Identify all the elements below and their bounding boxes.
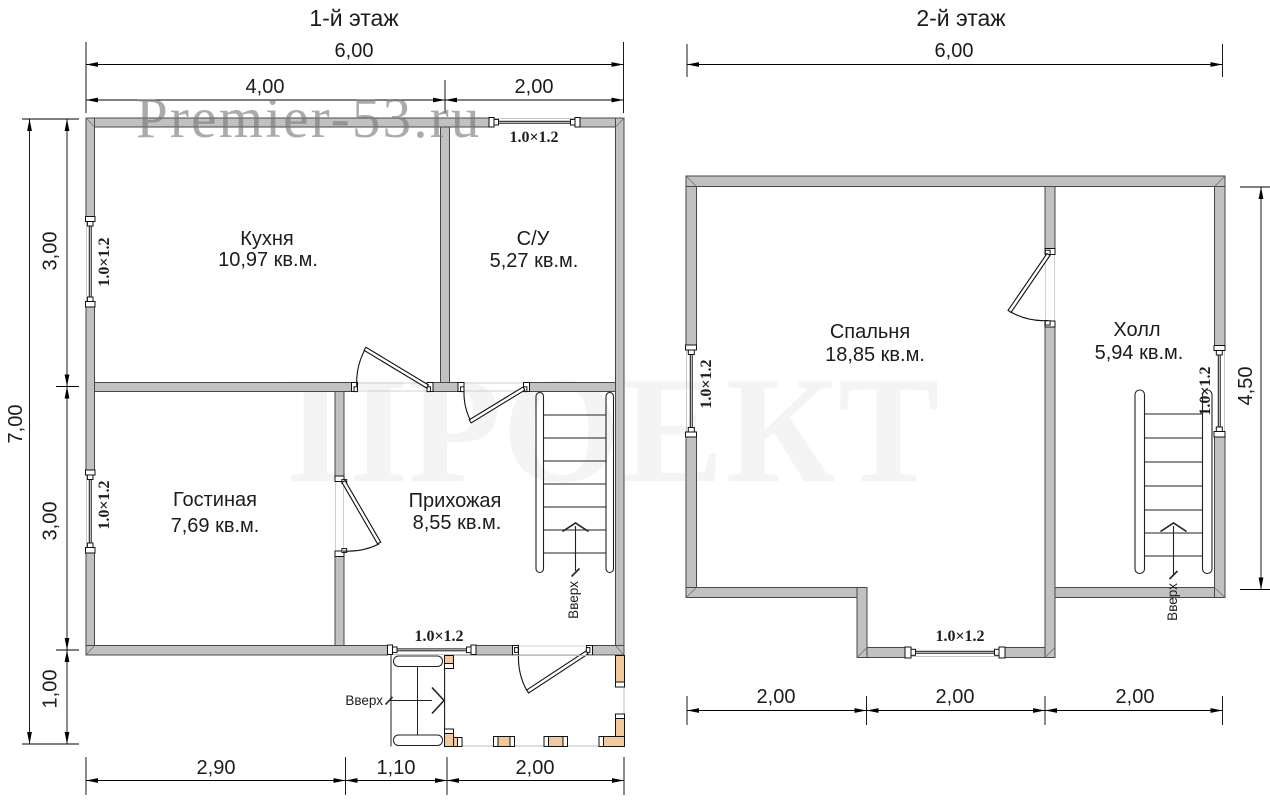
svg-text:2,00: 2,00: [515, 76, 554, 98]
svg-text:Спальня: Спальня: [830, 321, 910, 343]
svg-text:С/У: С/У: [517, 228, 550, 250]
svg-text:Прихожая: Прихожая: [409, 490, 502, 512]
svg-text:5,94 кв.м.: 5,94 кв.м.: [1095, 342, 1184, 364]
svg-text:1.0×1.2: 1.0×1.2: [414, 628, 463, 645]
svg-text:1-й этаж: 1-й этаж: [309, 5, 399, 31]
svg-text:7,00: 7,00: [5, 405, 27, 444]
svg-text:1.0×1.2: 1.0×1.2: [935, 628, 984, 645]
svg-text:1.0×1.2: 1.0×1.2: [96, 480, 113, 529]
svg-text:4,50: 4,50: [1235, 367, 1257, 406]
svg-text:2-й этаж: 2-й этаж: [916, 5, 1006, 31]
svg-text:6,00: 6,00: [335, 40, 374, 62]
svg-text:1.0×1.2: 1.0×1.2: [509, 129, 558, 146]
svg-text:7,69 кв.м.: 7,69 кв.м.: [171, 515, 260, 537]
svg-text:2,90: 2,90: [197, 757, 236, 779]
svg-text:18,85 кв.м.: 18,85 кв.м.: [825, 344, 925, 366]
svg-text:2,00: 2,00: [757, 686, 796, 708]
svg-text:8,55 кв.м.: 8,55 кв.м.: [413, 512, 502, 534]
svg-text:Холл: Холл: [1113, 319, 1160, 341]
svg-text:Кухня: Кухня: [240, 228, 294, 250]
svg-text:3,00: 3,00: [40, 232, 62, 271]
svg-text:1,10: 1,10: [377, 757, 416, 779]
svg-text:2,00: 2,00: [1116, 686, 1155, 708]
svg-text:ПРОЕКТ: ПРОЕКТ: [288, 346, 941, 514]
svg-text:10,97 кв.м.: 10,97 кв.м.: [218, 249, 318, 271]
svg-text:5,27 кв.м.: 5,27 кв.м.: [490, 250, 579, 272]
svg-text:1,00: 1,00: [40, 670, 62, 709]
svg-text:1.0×1.2: 1.0×1.2: [698, 359, 715, 408]
svg-text:1.0×1.2: 1.0×1.2: [96, 237, 113, 286]
svg-text:2,00: 2,00: [936, 686, 975, 708]
svg-text:Гостиная: Гостиная: [173, 489, 257, 511]
svg-text:Вверх: Вверх: [345, 693, 383, 708]
svg-text:6,00: 6,00: [935, 40, 974, 62]
svg-text:3,00: 3,00: [40, 502, 62, 541]
svg-text:Вверх: Вверх: [1165, 583, 1180, 621]
svg-text:Premier-53.ru: Premier-53.ru: [136, 87, 482, 150]
svg-text:Вверх: Вверх: [566, 581, 581, 619]
svg-text:2,00: 2,00: [516, 757, 555, 779]
